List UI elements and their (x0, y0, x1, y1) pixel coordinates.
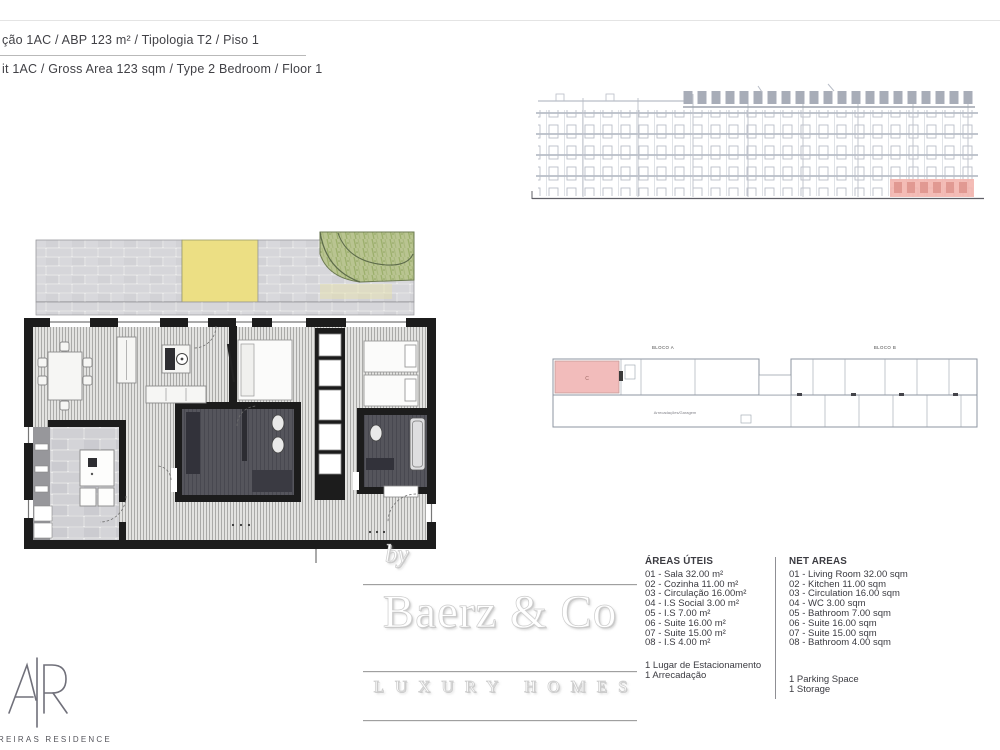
floor-plan-drawing (20, 230, 440, 564)
logo-tagline: LUXURY HOMES (369, 677, 643, 697)
header-divider (0, 55, 306, 56)
area-extra: 1 Arrecadação (645, 671, 770, 681)
building-elevation-drawing (528, 58, 990, 208)
key-plan-center-label: Arrecadações/Garagem (654, 410, 697, 415)
area-item: 08 - Bathroom 4.00 sqm (789, 638, 939, 648)
key-plan-drawing: BLOCO A BLOCO B C (545, 335, 985, 440)
residence-label: REIRAS RESIDENCE (0, 735, 112, 744)
logo-rule-top (363, 584, 637, 585)
areas-list-pt: ÁREAS ÚTEIS 01 - Sala 32.00 m² 02 - Cozi… (645, 557, 770, 681)
area-item: 08 - I.S 4.00 m² (645, 638, 770, 648)
areas-pt-title: ÁREAS ÚTEIS (645, 557, 770, 567)
unit-title-pt: ção 1AC / ABP 123 m² / Tipologia T2 / Pi… (2, 33, 259, 47)
areas-list-en: NET AREAS 01 - Living Room 32.00 sqm 02 … (789, 557, 939, 695)
brochure-page: ção 1AC / ABP 123 m² / Tipologia T2 / Pi… (0, 0, 1000, 750)
block-b-label: BLOCO B (874, 345, 896, 350)
area-extra: 1 Storage (789, 685, 939, 695)
highlighted-unit-letter: C (585, 376, 589, 382)
logo-by-label: by (385, 541, 409, 569)
page-top-rule (0, 20, 1000, 21)
baerz-logo: by Baerz & Co LUXURY HOMES (363, 543, 637, 725)
monogram-a-stroke (9, 665, 36, 713)
areas-divider (775, 557, 776, 699)
logo-rule-bottom (363, 720, 637, 721)
unit-title-en: it 1AC / Gross Area 123 sqm / Type 2 Bed… (2, 62, 322, 76)
ar-monogram-logo (6, 656, 72, 730)
block-a-label: BLOCO A (652, 345, 674, 350)
areas-en-title: NET AREAS (789, 557, 939, 567)
logo-name: Baerz & Co (363, 589, 637, 636)
logo-rule-middle (363, 671, 637, 672)
